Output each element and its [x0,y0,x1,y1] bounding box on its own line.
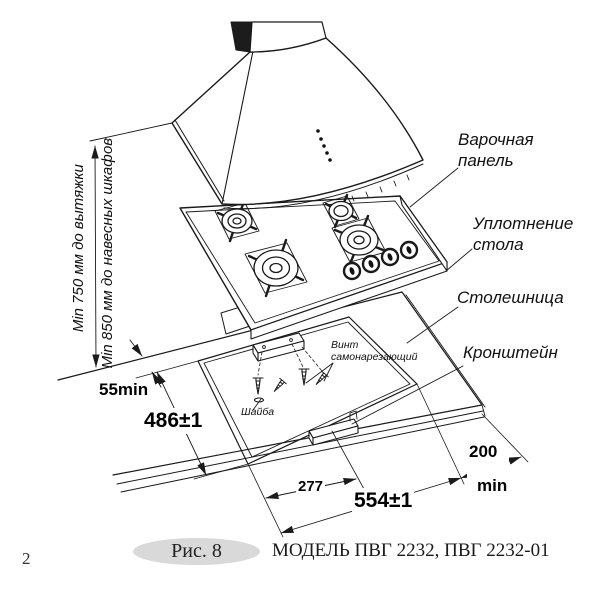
cooktop-illustration [180,195,447,339]
dimension-cutout-width: 554±1 [352,488,414,514]
callout-bracket: Кронштейн [463,343,558,364]
manual-page: Min 750 мм до вытяжки Min 850 мм до наве… [0,0,600,600]
page-number: 2 [22,549,31,569]
figure-caption: МОДЕЛЬ ПВГ 2232, ПВГ 2232-01 [272,540,550,562]
dimension-cabinet-clearance: Min 850 мм до навесных шкафов [99,133,117,373]
dimension-cutout-depth: 486±1 [142,408,204,434]
hood-illustration [172,22,423,209]
dimension-side-clearance: 200 min [467,443,509,494]
dimension-edge-offset: 55min [97,380,150,401]
dimension-center-offset: 277 [296,478,325,496]
figure-tag: Рис. 8 [133,538,260,565]
callout-seal: Уплотнение стола [473,214,573,255]
callout-washer: Шайба [241,406,274,418]
callout-countertop: Столешница [457,288,564,309]
callout-hob: Варочная панель [458,130,534,171]
side-clearance-unit: min [469,476,507,495]
side-clearance-value: 200 [469,442,497,461]
dimension-hood-clearance: Min 750 мм до вытяжки [70,128,88,368]
callout-screw: Винт самонарезающий [331,339,417,363]
